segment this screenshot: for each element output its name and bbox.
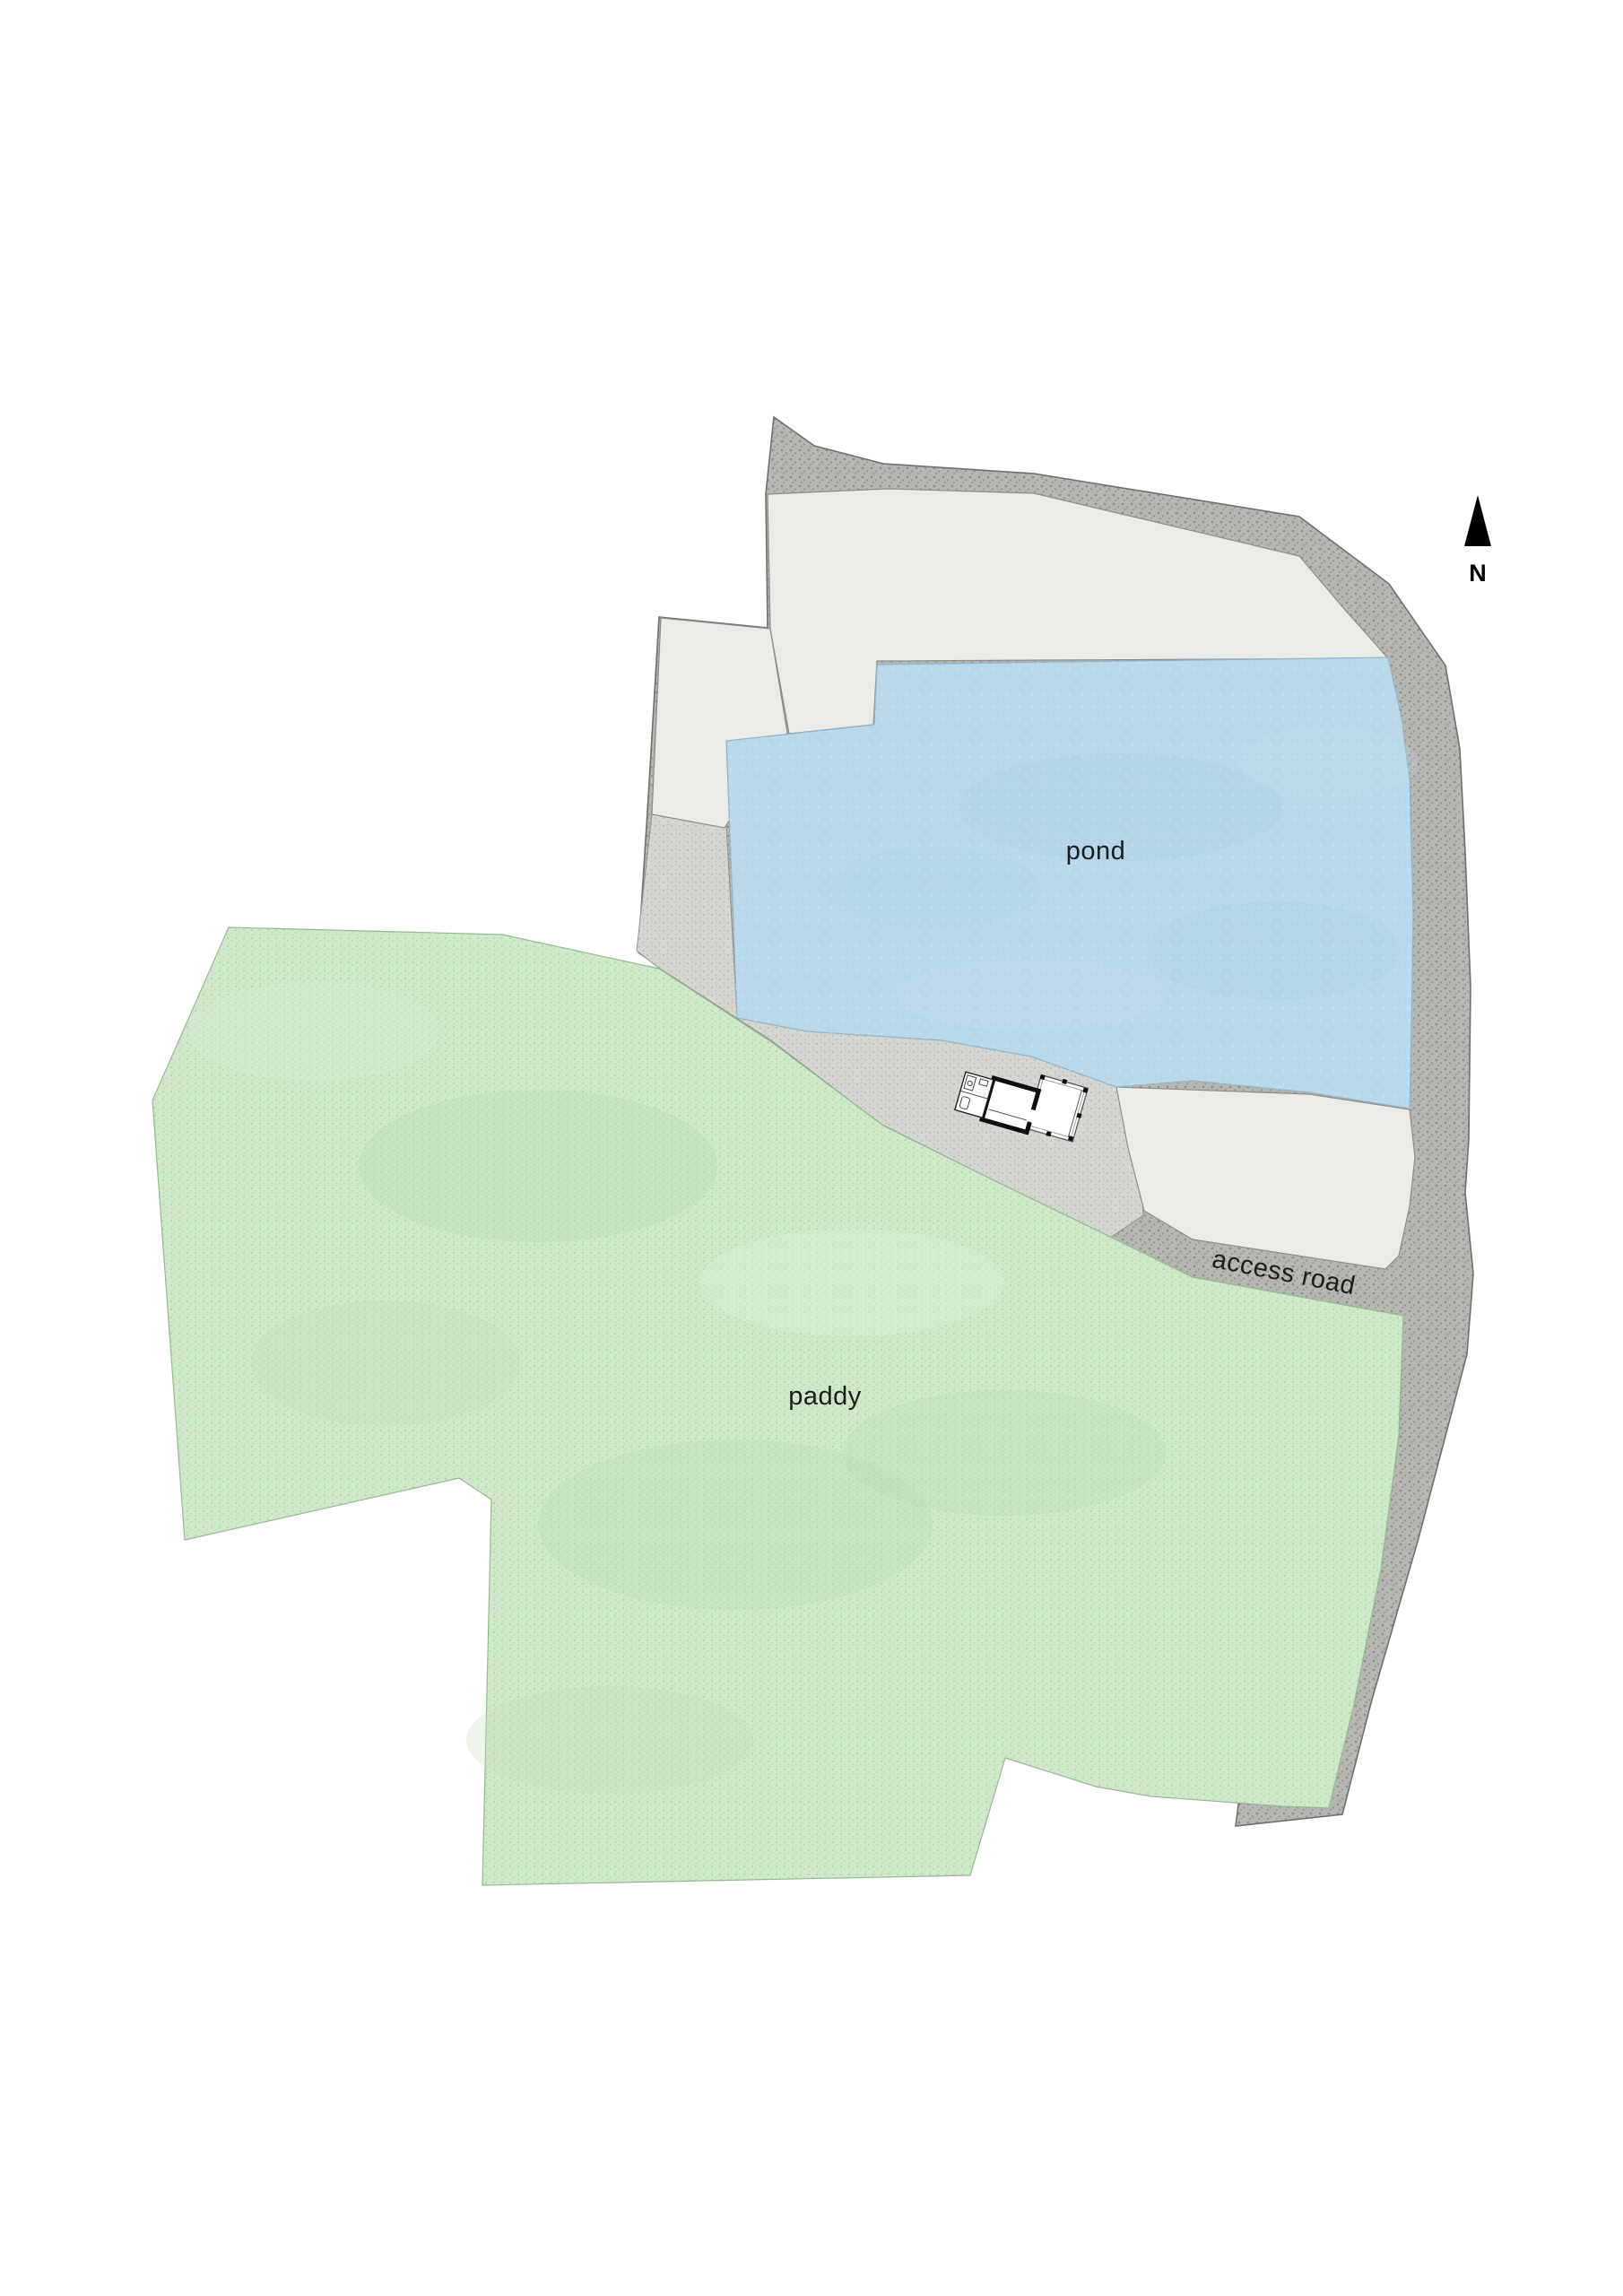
paddy-label: paddy (788, 1382, 862, 1411)
pond-label: pond (1066, 837, 1126, 865)
north-indicator: N (1464, 495, 1491, 587)
north-label: N (1469, 560, 1487, 587)
north-arrow-icon (1464, 495, 1491, 546)
site-plan: pond paddy access road N (0, 0, 1623, 2296)
